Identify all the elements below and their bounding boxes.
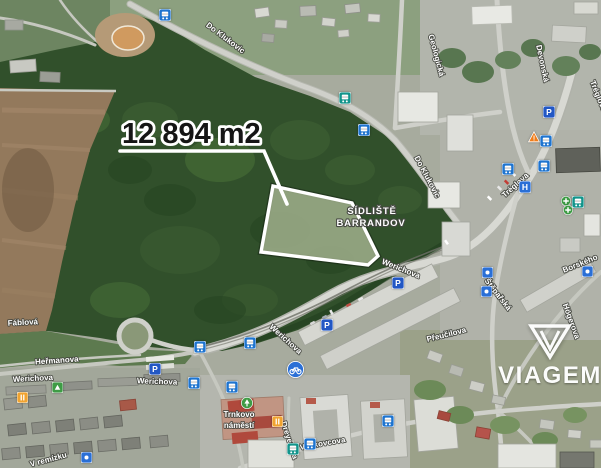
district-label-line1: SÍDLIŠTĚ	[347, 205, 396, 217]
street-label: Trnkovo	[223, 410, 254, 419]
listing-map-image: 12 894 m2 SÍDLIŠTĚ BARRANDOV Do Klukovic…	[0, 0, 601, 468]
street-label: náměstí	[224, 421, 255, 430]
street-label: Fáblová	[8, 317, 39, 328]
satellite-map: 12 894 m2 SÍDLIŠTĚ BARRANDOV Do Klukovic…	[0, 0, 601, 468]
street-label: Werichova	[137, 376, 178, 386]
district-label-line2: BARRANDOV	[337, 218, 406, 229]
parcel-area-label: 12 894 m2	[122, 118, 261, 150]
